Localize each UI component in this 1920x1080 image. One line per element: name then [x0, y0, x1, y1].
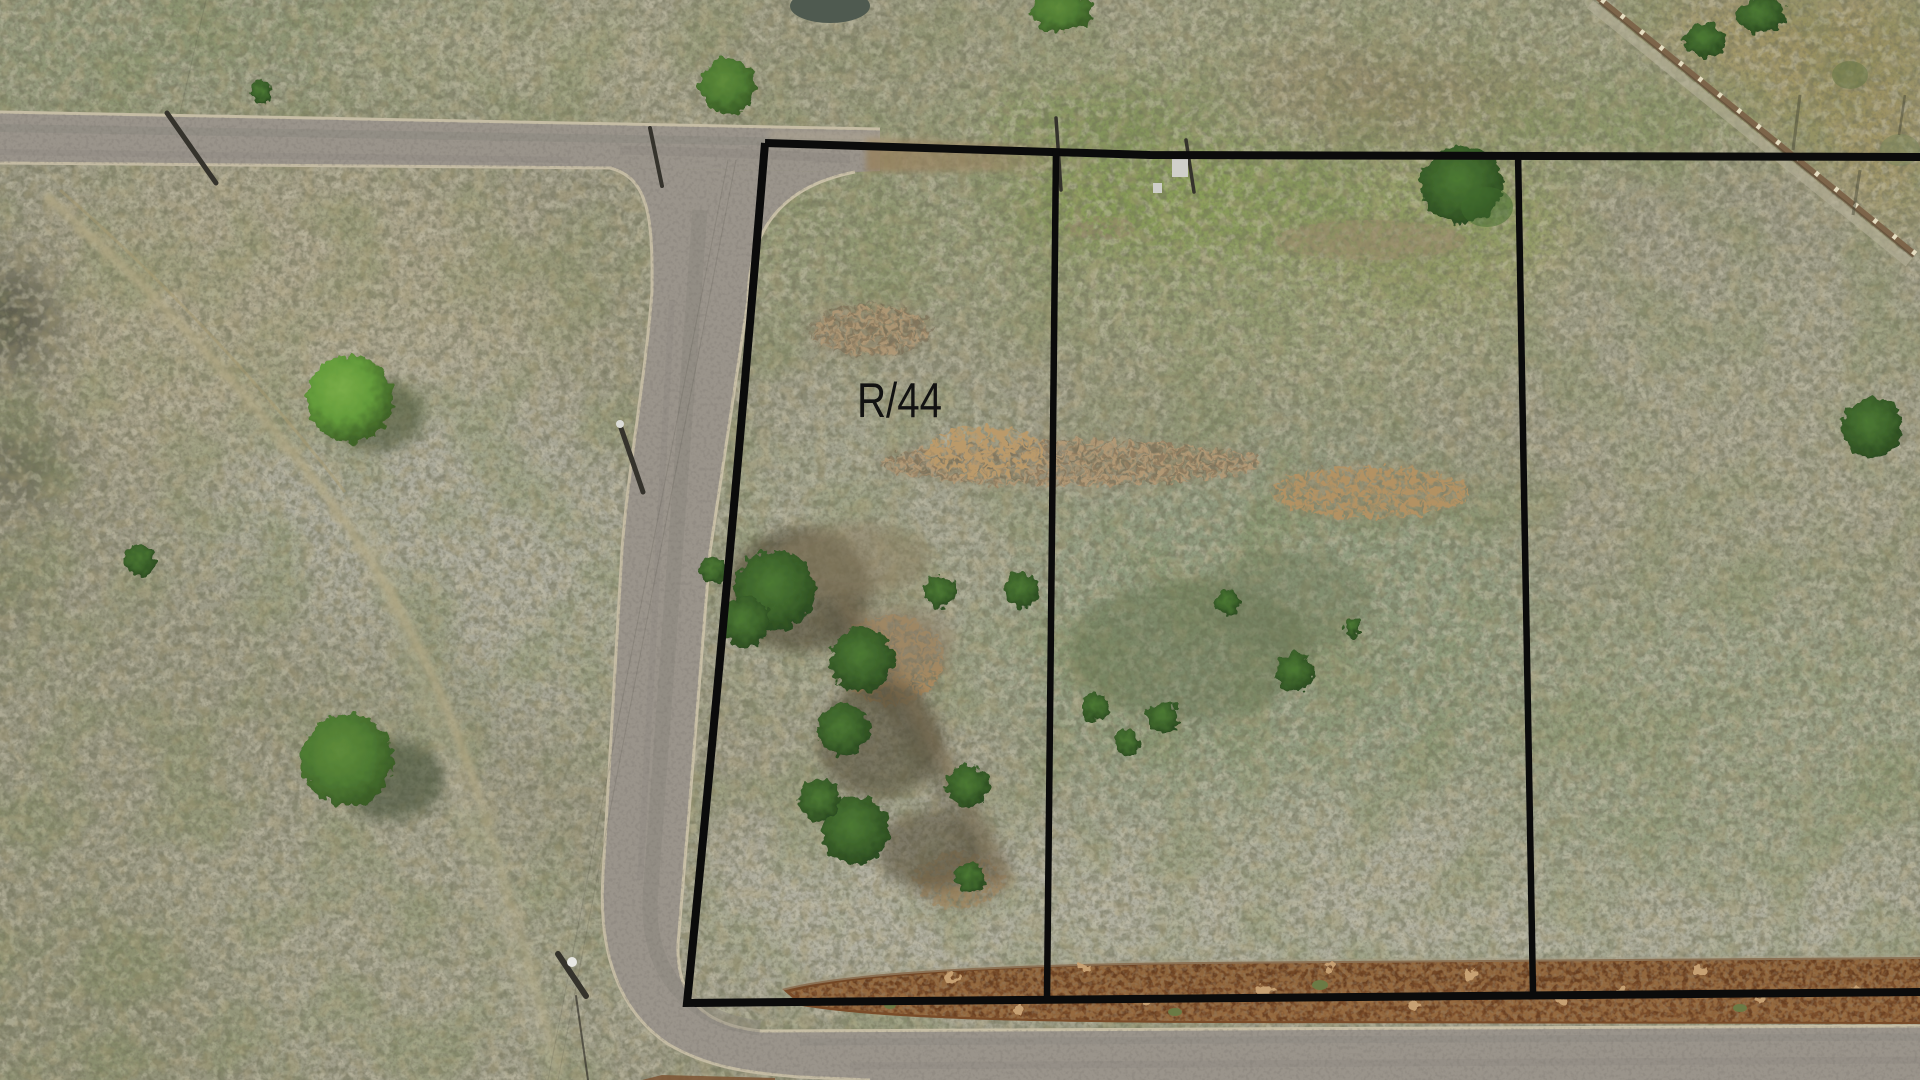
svg-text:R/44: R/44 — [857, 374, 942, 428]
